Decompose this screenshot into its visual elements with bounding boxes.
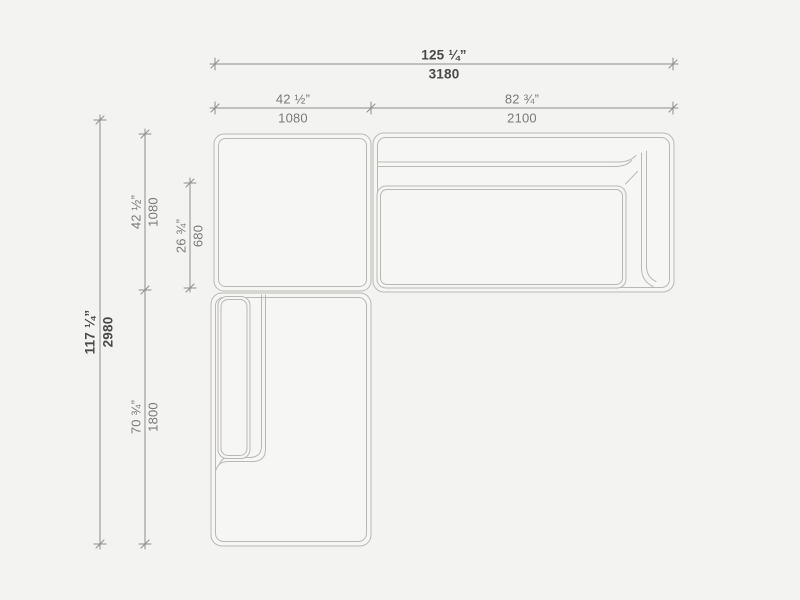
dimension-layer [94, 58, 678, 549]
furniture-layer [211, 133, 674, 546]
label-overall-width-inches: 125 ¼” [421, 48, 466, 62]
label-chaise-length-mm: 1800 [147, 402, 160, 432]
chaise-armrest-cushion-outline [218, 297, 250, 459]
right-sofa-seat-cushion-outline [377, 186, 626, 288]
sofa-dimension-drawing [0, 0, 800, 600]
label-seat-depth-mm: 680 [192, 225, 205, 247]
drawing-canvas: 125 ¼” 3180 42 ½” 1080 82 ¾” 2100 117 ¼”… [0, 0, 800, 600]
dim-line-module-depths [139, 129, 151, 549]
label-top-module-depth-mm: 1080 [147, 197, 160, 227]
label-overall-width-mm: 3180 [429, 67, 460, 81]
label-overall-depth-mm: 2980 [101, 317, 115, 348]
label-overall-depth-inches: 117 ¼” [83, 310, 97, 355]
label-right-module-width-mm: 2100 [507, 112, 537, 125]
label-top-module-depth-inches: 42 ½” [130, 195, 143, 229]
left-seat-module-outline [214, 134, 371, 291]
label-left-module-width-mm: 1080 [278, 112, 308, 125]
label-chaise-length-inches: 70 ¾” [130, 400, 143, 434]
label-right-module-width-inches: 82 ¾” [505, 93, 539, 106]
label-left-module-width-inches: 42 ½” [276, 93, 310, 106]
label-seat-depth-inches: 26 ¾” [175, 219, 188, 253]
